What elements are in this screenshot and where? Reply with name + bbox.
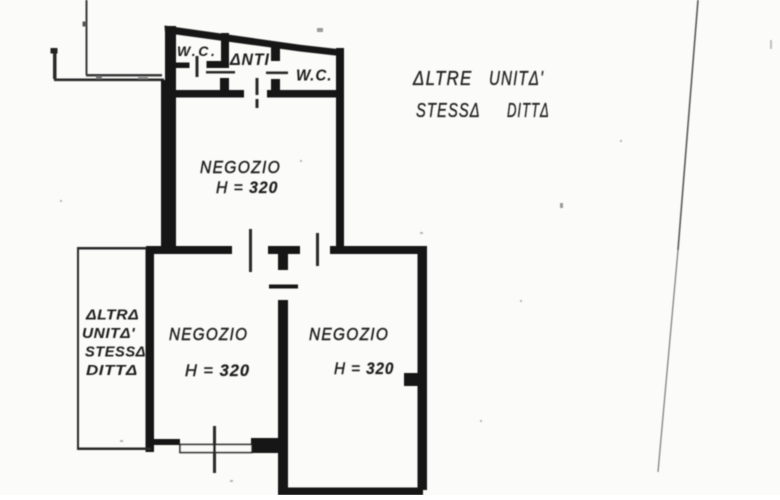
- svg-text:ΔNTI: ΔNTI: [229, 51, 270, 70]
- svg-text:UNITΔ': UNITΔ': [82, 325, 136, 342]
- svg-text:H = 320: H = 320: [185, 361, 250, 380]
- svg-text:W.C.: W.C.: [177, 43, 217, 59]
- svg-text:DITTΔ: DITTΔ: [86, 363, 138, 379]
- svg-text:ΔLTRΔ: ΔLTRΔ: [85, 307, 139, 324]
- svg-text:NEGOZIO: NEGOZIO: [200, 157, 281, 177]
- svg-text:H = 320: H = 320: [216, 179, 278, 198]
- svg-text:NEGOZIO: NEGOZIO: [309, 325, 389, 344]
- svg-text:NEGOZIO: NEGOZIO: [169, 325, 248, 344]
- svg-text:H = 320: H = 320: [334, 359, 394, 378]
- svg-text:ΔLTRE: ΔLTRE: [412, 66, 472, 89]
- svg-text:STESSΔ: STESSΔ: [85, 344, 146, 360]
- svg-text:STESSΔ: STESSΔ: [416, 99, 481, 122]
- svg-text:UNITΔ': UNITΔ': [489, 67, 544, 90]
- svg-text:DITTΔ: DITTΔ: [507, 98, 550, 122]
- svg-text:W.C.: W.C.: [296, 67, 332, 84]
